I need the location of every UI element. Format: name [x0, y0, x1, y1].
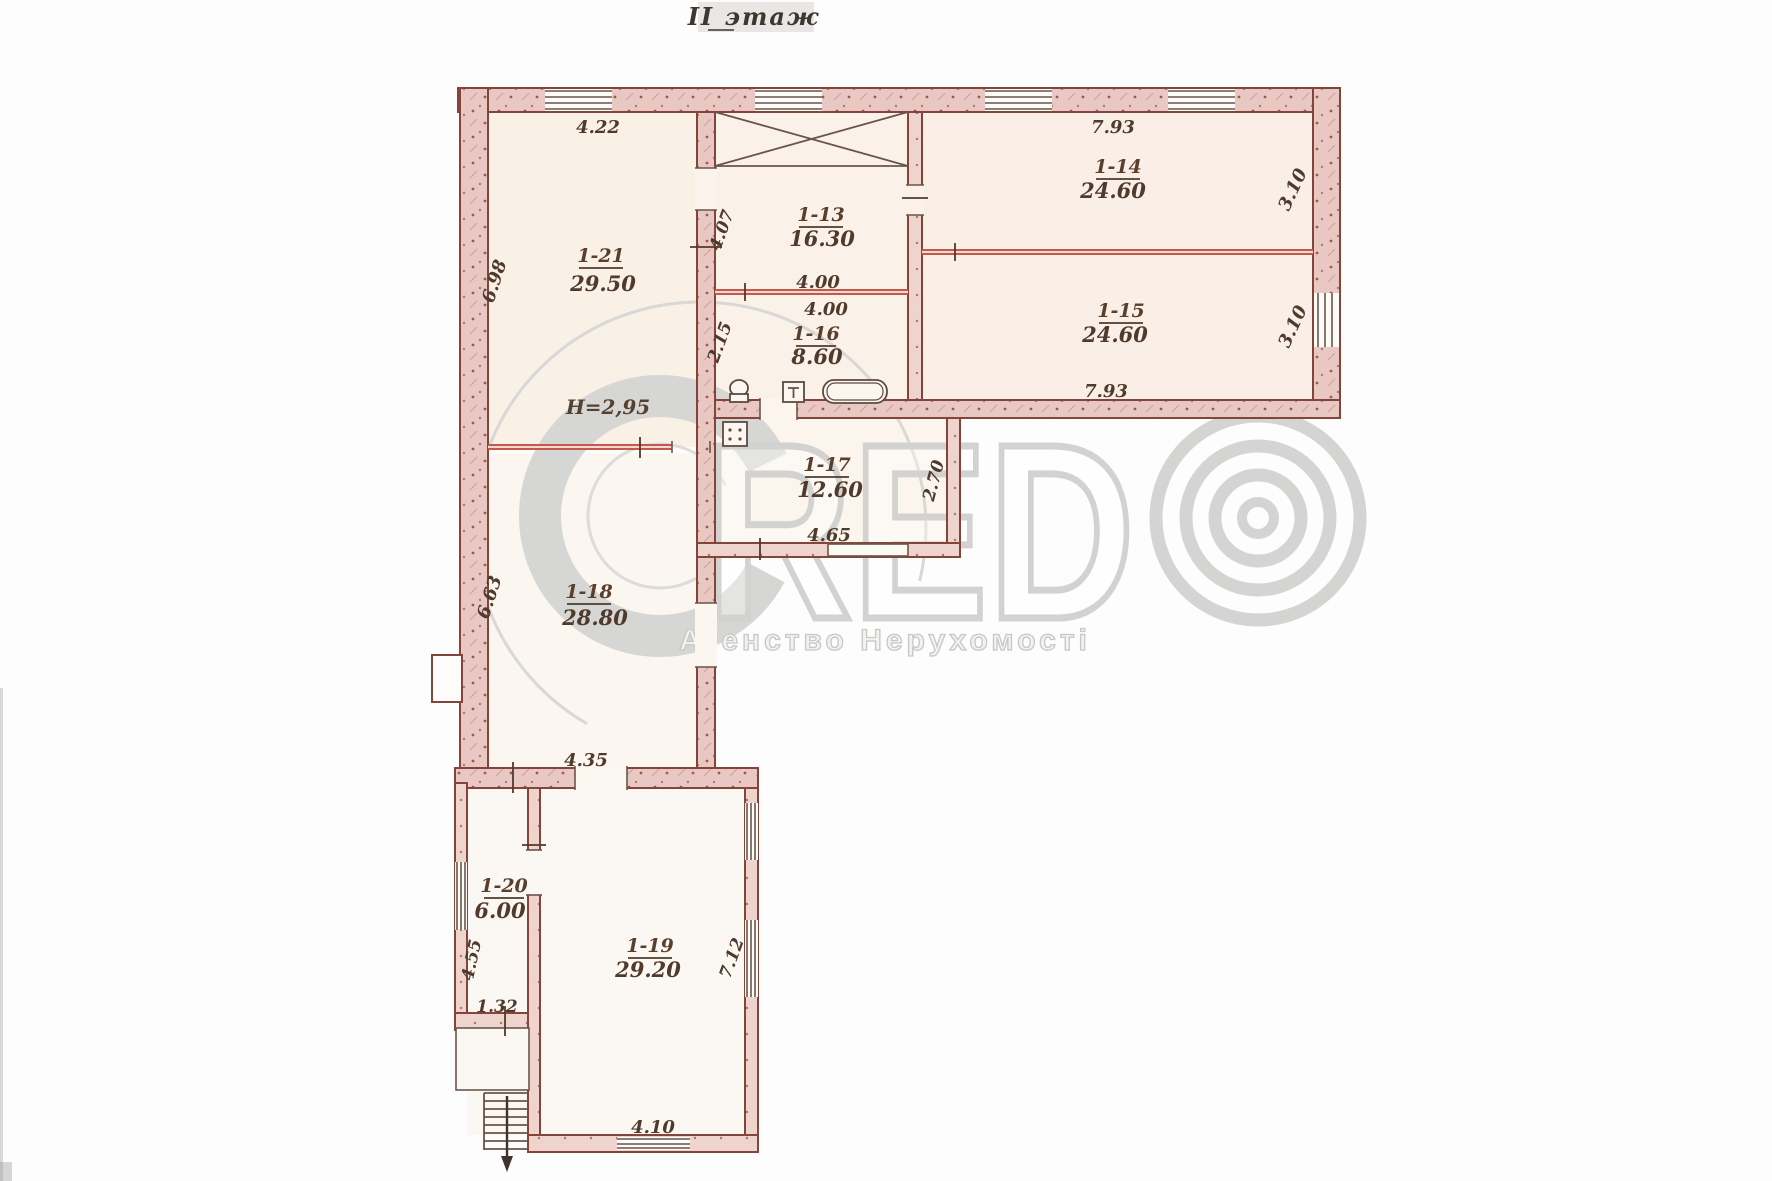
svg-text:1-17: 1-17 — [803, 454, 851, 476]
svg-text:1-21: 1-21 — [577, 245, 625, 267]
door-r13-r14 — [906, 185, 924, 215]
window-bottom-r19 — [617, 1137, 690, 1150]
window-top-1 — [545, 89, 612, 111]
stair-landing — [456, 1028, 529, 1090]
dim-left-1-32: 1.32 — [476, 997, 518, 1017]
page-title: II этаж — [687, 2, 821, 31]
svg-text:28.80: 28.80 — [561, 605, 628, 630]
watermark-copyright-mark — [1156, 416, 1360, 620]
dim-bot-4-10: 4.10 — [631, 1117, 675, 1138]
window-top-2 — [755, 89, 822, 111]
window-top-4 — [1168, 89, 1235, 111]
room-label-1-20: 1-20 6.00 — [474, 875, 527, 923]
svg-text:24.60: 24.60 — [1079, 178, 1146, 203]
window-right-wall — [1314, 293, 1339, 347]
stove-icon — [723, 422, 747, 446]
window-left-r20 — [455, 862, 467, 930]
dim-top-4-22: 4.22 — [576, 117, 620, 138]
dim-mid-4-00-b: 4.00 — [804, 299, 848, 320]
dim-mid-4-00-a: 4.00 — [796, 272, 840, 293]
dim-top-7-93: 7.93 — [1091, 117, 1135, 138]
svg-text:12.60: 12.60 — [797, 477, 863, 502]
wall-right — [1313, 88, 1340, 418]
door-r20-r19 — [526, 850, 542, 895]
dim-r17-4-65: 4.65 — [807, 525, 851, 546]
sink-icon — [783, 382, 804, 402]
svg-text:1-18: 1-18 — [565, 581, 613, 603]
wall-r17-right — [947, 418, 960, 557]
door-r21-r13 — [695, 168, 717, 210]
svg-text:6.00: 6.00 — [474, 898, 526, 923]
svg-text:1-16: 1-16 — [792, 323, 840, 345]
svg-text:1-13: 1-13 — [797, 204, 845, 226]
room-label-1-16: 1-16 8.60 — [790, 323, 843, 369]
wall-r20-r19-divider — [528, 788, 540, 1152]
svg-text:8.60: 8.60 — [790, 344, 843, 369]
scanned-floor-plan-page: RED Агенство Нерухомості — [0, 0, 1772, 1181]
svg-text:1-19: 1-19 — [626, 935, 674, 957]
svg-text:24.60: 24.60 — [1081, 322, 1148, 347]
dim-bot-7-93: 7.93 — [1084, 381, 1128, 402]
wall-pilaster — [432, 655, 462, 702]
wall-midcol-right — [908, 112, 922, 400]
window-right-r19-2 — [745, 920, 758, 997]
svg-text:29.20: 29.20 — [614, 957, 681, 982]
window-top-3 — [985, 89, 1052, 111]
scan-corner-smudge — [0, 1162, 12, 1181]
watermark-subtitle: Агенство Нерухомості — [679, 624, 1091, 657]
wall-left-upper — [460, 88, 488, 783]
bathtub-icon — [823, 380, 887, 403]
window-right-r19-1 — [745, 803, 758, 860]
plan-title: II этаж — [687, 2, 821, 32]
svg-text:1-15: 1-15 — [1097, 300, 1145, 322]
svg-text:1-20: 1-20 — [480, 875, 528, 897]
svg-text:16.30: 16.30 — [789, 226, 855, 251]
dim-r18-4-35: 4.35 — [564, 750, 608, 771]
wall-mid-vertical — [697, 112, 715, 783]
toilet-icon — [730, 380, 748, 402]
svg-text:29.50: 29.50 — [569, 271, 636, 296]
scan-edge-line — [0, 688, 3, 1181]
floor-plan-svg: RED Агенство Нерухомості — [0, 0, 1772, 1181]
svg-text:1-14: 1-14 — [1094, 156, 1142, 178]
door-r18 — [695, 603, 717, 667]
ceiling-height-note: H=2,95 — [565, 395, 650, 419]
